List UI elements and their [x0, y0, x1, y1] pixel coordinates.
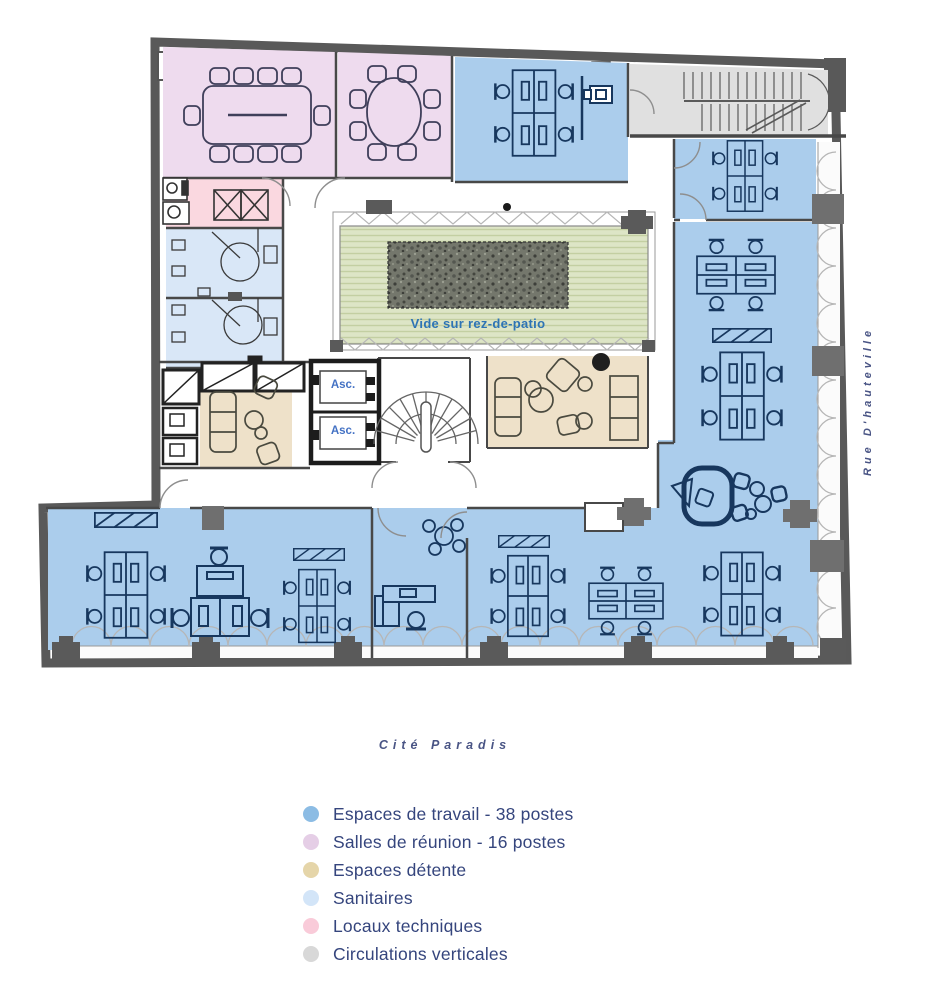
legend-item-circulation: Circulations verticales [303, 940, 573, 968]
legend: Espaces de travail - 38 postes Salles de… [303, 800, 573, 968]
legend-label-circulation: Circulations verticales [333, 944, 508, 965]
legend-dot-technical [303, 918, 319, 934]
legend-item-technical: Locaux techniques [303, 912, 573, 940]
legend-dot-lounge [303, 862, 319, 878]
legend-dot-work [303, 806, 319, 822]
legend-dot-sanitary [303, 890, 319, 906]
legend-label-lounge: Espaces détente [333, 860, 466, 881]
legend-label-technical: Locaux techniques [333, 916, 482, 937]
legend-item-work: Espaces de travail - 38 postes [303, 800, 573, 828]
legend-item-meeting: Salles de réunion - 16 postes [303, 828, 573, 856]
legend-label-sanitary: Sanitaires [333, 888, 413, 909]
elevators [311, 361, 379, 463]
page: Vide sur rez-de-patio Asc. Asc. Rue D'ha… [0, 0, 950, 994]
legend-dot-meeting [303, 834, 319, 850]
legend-item-lounge: Espaces détente [303, 856, 573, 884]
patio [333, 212, 655, 350]
legend-item-sanitary: Sanitaires [303, 884, 573, 912]
legend-dot-circulation [303, 946, 319, 962]
legend-label-work: Espaces de travail - 38 postes [333, 804, 573, 825]
legend-label-meeting: Salles de réunion - 16 postes [333, 832, 565, 853]
